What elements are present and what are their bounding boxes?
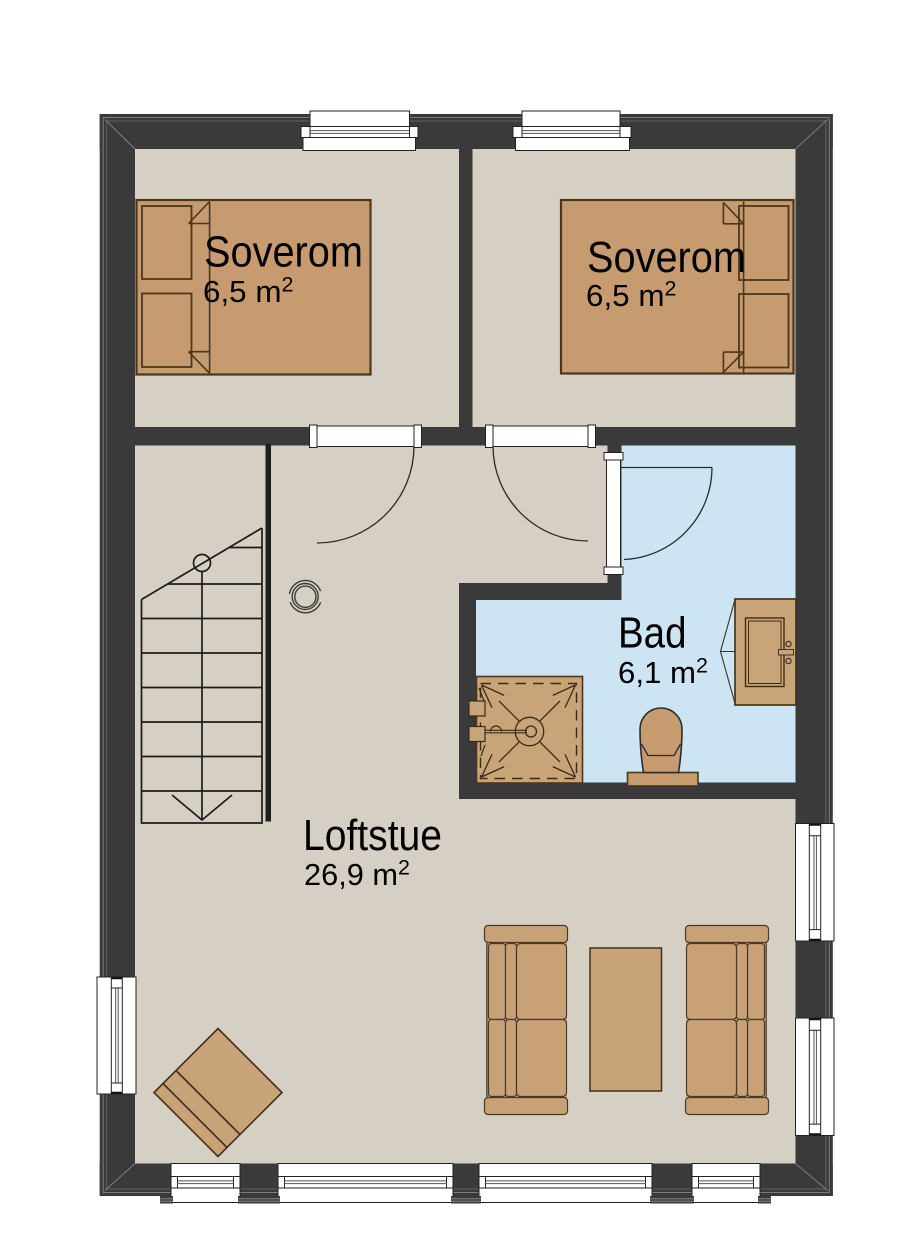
svg-text:6,1 m2: 6,1 m2 [618, 654, 708, 691]
svg-text:6,5 m2: 6,5 m2 [203, 273, 293, 310]
svg-text:26,9 m2: 26,9 m2 [304, 856, 410, 893]
svg-text:Soverom: Soverom [587, 233, 746, 282]
svg-text:Soverom: Soverom [204, 228, 363, 277]
svg-text:6,5 m2: 6,5 m2 [586, 277, 676, 314]
svg-text:Loftstue: Loftstue [303, 811, 442, 860]
svg-text:Bad: Bad [618, 609, 687, 658]
